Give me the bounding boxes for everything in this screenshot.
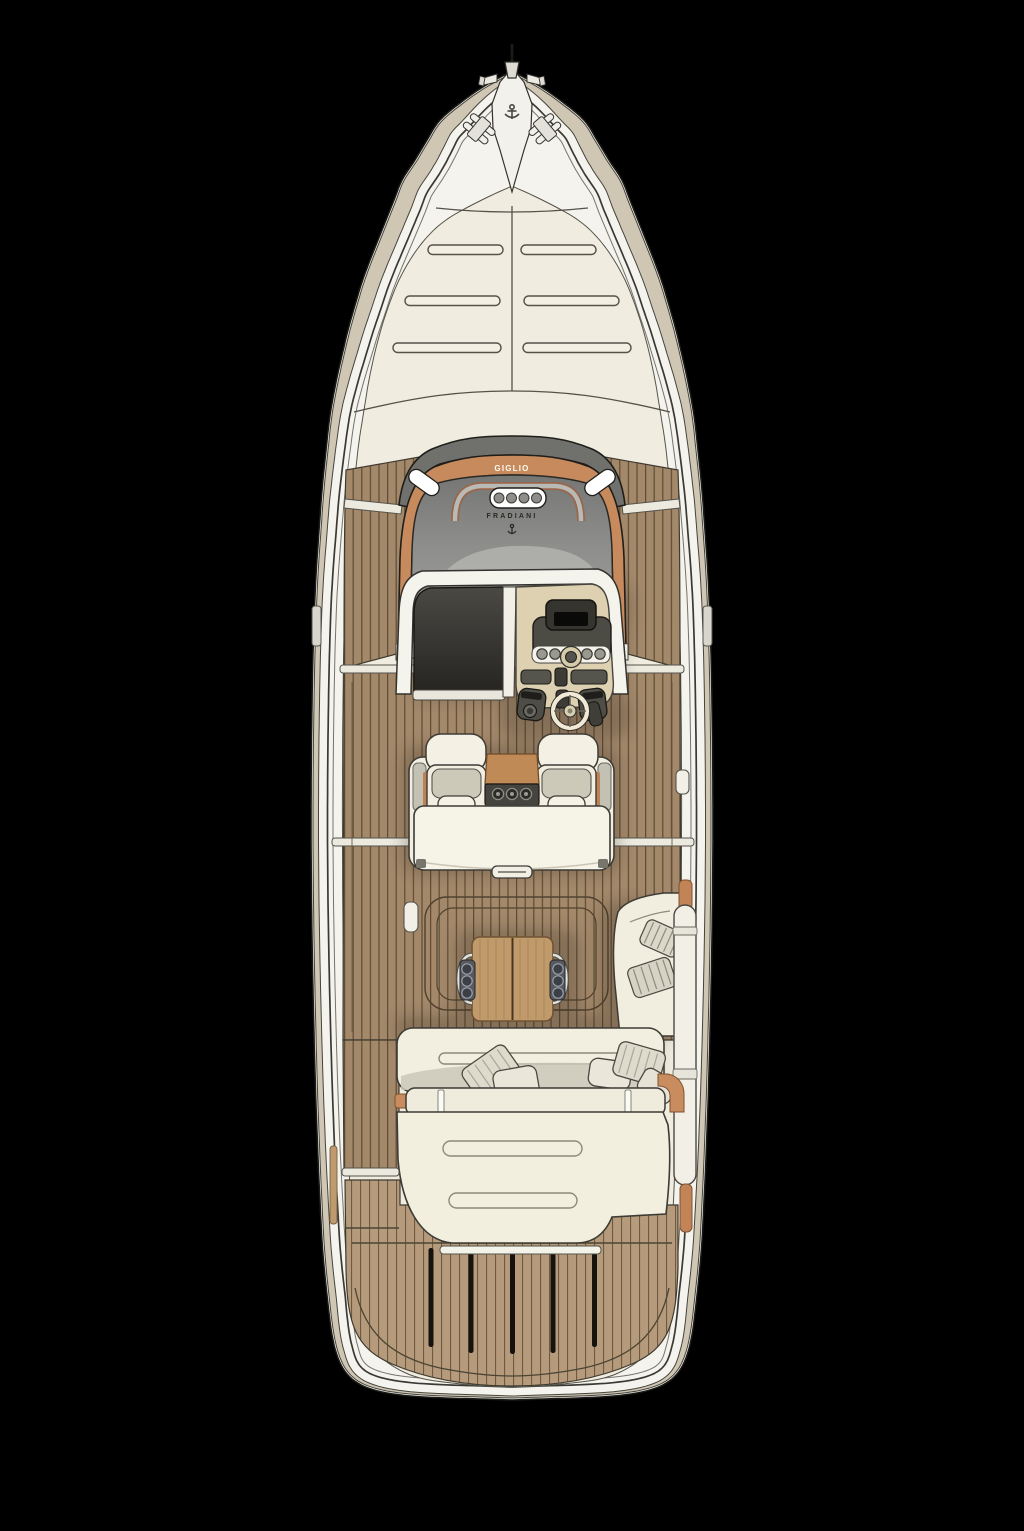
svg-text:GIGLIO: GIGLIO: [494, 464, 529, 473]
svg-text:FRADIANI: FRADIANI: [486, 513, 537, 520]
